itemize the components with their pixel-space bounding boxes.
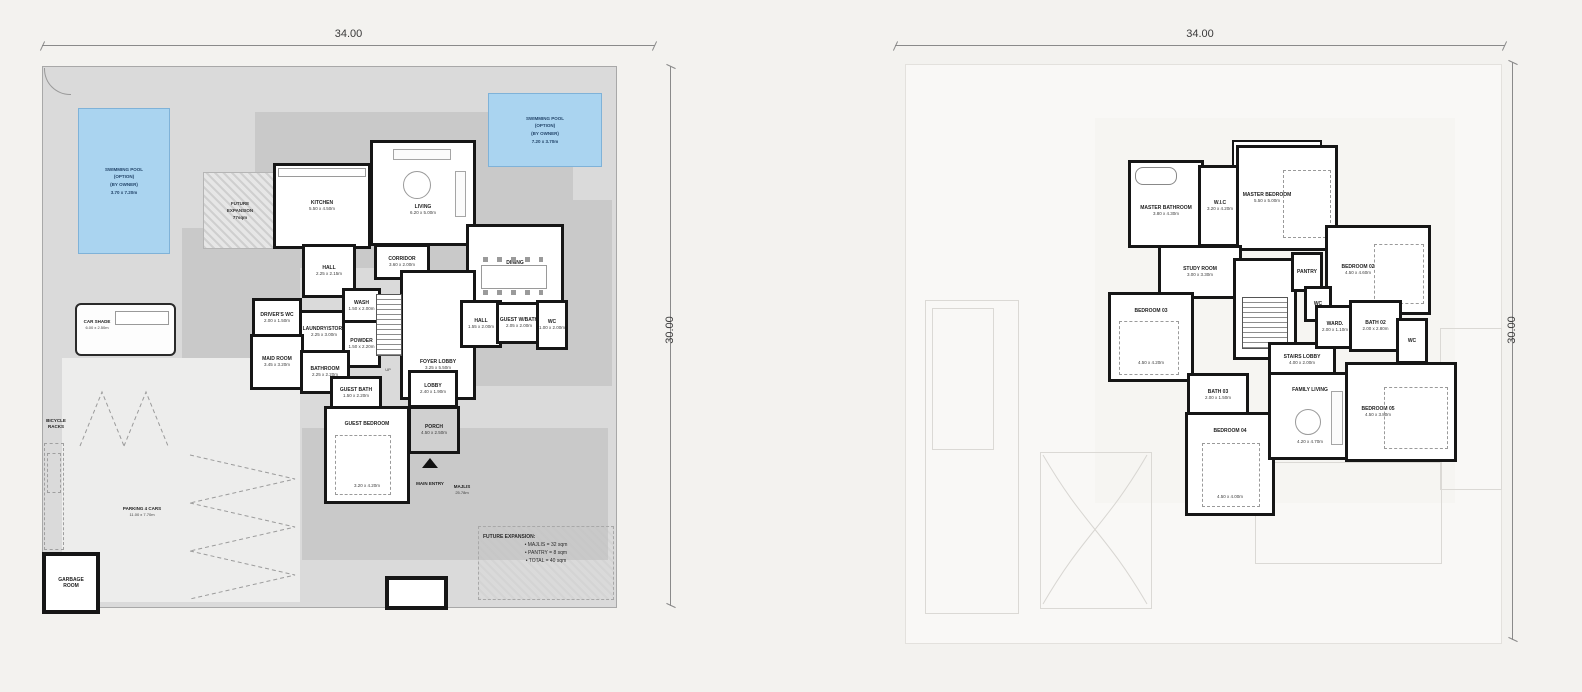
kitchen-counter bbox=[278, 168, 366, 177]
room-dims: 1.55 x 2.00m bbox=[468, 324, 494, 330]
room-garbage: GARBAGE ROOM bbox=[42, 552, 100, 614]
room-porch: PORCH 4.50 x 2.50m bbox=[408, 406, 460, 454]
room-label: BEDROOM 04 bbox=[1213, 428, 1246, 435]
bicycle-racks-label: BICYCLE RACKS bbox=[40, 418, 72, 430]
room-dims: 1.50 x 2.20m bbox=[348, 344, 374, 350]
pool-label: (OPTION) bbox=[114, 173, 134, 181]
boundary-gate bbox=[385, 576, 448, 610]
room-family-living: FAMILY LIVING 4.20 x 4.70m bbox=[1268, 372, 1352, 460]
pool-label: SWIMMING POOL bbox=[105, 166, 143, 174]
swimming-pool-right: SWIMMING POOL (OPTION) (BY OWNER) 7.20 x… bbox=[488, 93, 602, 167]
room-bath-02: BATH 02 2.00 x 2.80m bbox=[1349, 300, 1402, 352]
room-kitchen: KITCHEN 5.50 x 4.50m bbox=[273, 163, 371, 249]
guest-bed bbox=[335, 435, 391, 495]
room-label: FAMILY LIVING bbox=[1292, 387, 1328, 394]
ghost-terrace-bottom bbox=[1255, 462, 1442, 564]
room-dims: 1.00 x 2.00m bbox=[539, 325, 565, 331]
bedroom02-bed bbox=[1374, 244, 1424, 304]
room-label: GUEST BEDROOM bbox=[345, 421, 390, 428]
dim-top-line bbox=[895, 45, 1505, 46]
dim-right-label: 30.00 bbox=[1506, 308, 1518, 352]
room-dims: 1.50 x 2.00m bbox=[348, 306, 374, 312]
room-dims: 3.00 x 3.30m bbox=[1187, 272, 1213, 278]
ghost-parking-inner bbox=[932, 308, 994, 450]
family-table bbox=[1295, 409, 1321, 435]
staircase-up bbox=[376, 294, 402, 356]
room-living: LIVING 6.20 x 5.00m bbox=[370, 140, 476, 246]
parking-label: PARKING 4 CARS 11.00 x 7.70m bbox=[102, 506, 182, 517]
room-dims: 1.50 x 2.20m bbox=[343, 393, 369, 399]
bathtub bbox=[1135, 167, 1177, 185]
room-label: BEDROOM 03 bbox=[1134, 308, 1167, 315]
swimming-pool-left: SWIMMING POOL (OPTION) (BY OWNER) 3.70 x… bbox=[78, 108, 170, 254]
room-lobby: LOBBY 2.40 x 1.90m bbox=[408, 370, 458, 408]
ground-floor-plan: 34.00 30.00 SWIMMING POOL (OPTION) (BY O… bbox=[40, 28, 685, 678]
dining-chairs-bottom bbox=[483, 290, 543, 295]
car-shade-dims: 6.00 x 2.50m bbox=[79, 325, 115, 330]
parking-dims: 11.00 x 7.70m bbox=[102, 512, 182, 517]
room-study: STUDY ROOM 3.00 x 3.30m bbox=[1158, 245, 1242, 299]
note-item: • TOTAL = 40 sqm bbox=[483, 557, 609, 565]
car-shade-name: CAR SHADE bbox=[79, 319, 115, 325]
family-sofa bbox=[1331, 391, 1343, 445]
hatch-label: 77sqm bbox=[233, 214, 247, 221]
room-dims: 3.80 x 4.30m bbox=[1153, 211, 1179, 217]
room-dims: 2.00 x 1.50m bbox=[264, 318, 290, 324]
car-shade-label: CAR SHADE 6.00 x 2.50m bbox=[79, 319, 115, 330]
car-shade-bench bbox=[115, 311, 169, 325]
room-dims: 2.00 x 1.50m bbox=[1205, 395, 1231, 401]
bedroom04-bed bbox=[1202, 443, 1260, 507]
room-dims: 4.50 x 2.50m bbox=[421, 430, 447, 436]
car-shade: CAR SHADE 6.00 x 2.50m bbox=[75, 303, 176, 356]
room-master-bedroom: MASTER BEDROOM 5.50 x 5.00m bbox=[1236, 145, 1338, 251]
note-item: • MAJLIS = 32 sqm bbox=[483, 541, 609, 549]
room-maid: MAID ROOM 3.45 x 3.20m bbox=[250, 334, 304, 390]
pool-label: (BY OWNER) bbox=[110, 181, 138, 189]
dim-top-line bbox=[42, 45, 655, 46]
bedroom03-bed bbox=[1119, 321, 1179, 375]
dining-chairs-top bbox=[483, 257, 543, 262]
dim-top-label: 34.00 bbox=[895, 28, 1505, 40]
room-label: ROOM bbox=[63, 583, 79, 590]
living-sofa-top bbox=[393, 149, 451, 160]
first-floor-plan: 34.00 30.00 TERRACE 4.45 x 2.00m MASTER … bbox=[890, 28, 1540, 683]
room-dims: 2.00 x 1.10m bbox=[1322, 327, 1348, 333]
pool-label: SWIMMING POOL bbox=[526, 115, 564, 123]
room-dims: 2.40 x 1.90m bbox=[420, 389, 446, 395]
bicycle-line2: RACKS bbox=[40, 424, 72, 430]
hatch-label: EXPANSION bbox=[227, 207, 253, 214]
majlis-label: MAJLIS 25.78m bbox=[432, 484, 492, 495]
room-dims: 2.25 x 2.15m bbox=[316, 271, 342, 277]
up-label: UP bbox=[385, 367, 391, 372]
pool-label: (OPTION) bbox=[535, 122, 555, 130]
stairs-up-label: UP bbox=[370, 356, 406, 378]
master-bed bbox=[1283, 170, 1331, 238]
room-label: WC bbox=[1408, 338, 1416, 345]
room-dims: 2.05 x 2.00m bbox=[506, 323, 532, 329]
room-wc: WC 1.00 x 2.00m bbox=[536, 300, 568, 350]
room-dims: 6.20 x 5.00m bbox=[410, 210, 436, 216]
note-title: FUTURE EXPANSION: bbox=[483, 533, 609, 541]
future-expansion-note: FUTURE EXPANSION: • MAJLIS = 32 sqm • PA… bbox=[478, 526, 614, 600]
room-bedroom-03: BEDROOM 03 4.50 x 4.20m bbox=[1108, 292, 1194, 382]
living-table bbox=[403, 171, 431, 199]
room-dims: 4.50 x 4.60m bbox=[1345, 270, 1371, 276]
room-dims: 2.25 x 3.00m bbox=[311, 332, 337, 338]
dim-right-label: 30.00 bbox=[664, 308, 676, 352]
room-dining: DINING 7.00 x 4.00m bbox=[466, 224, 564, 308]
room-drivers-wc: DRIVER'S WC 2.00 x 1.50m bbox=[252, 298, 302, 338]
room-dims: 4.20 x 4.70m bbox=[1297, 439, 1323, 445]
note-item: • PANTRY = 8 sqm bbox=[483, 549, 609, 557]
room-dims: 5.50 x 5.00m bbox=[1254, 198, 1280, 204]
room-guest-bedroom: GUEST BEDROOM 3.20 x 4.20m bbox=[324, 406, 410, 504]
dim-top-label: 34.00 bbox=[40, 28, 657, 40]
ghost-pool-curves bbox=[1040, 452, 1150, 607]
pool-label: 7.20 x 3.70m bbox=[532, 138, 559, 146]
room-dims: 2.00 x 2.80m bbox=[1362, 326, 1388, 332]
pool-label: 3.70 x 7.20m bbox=[111, 189, 138, 197]
majlis-dims: 25.78m bbox=[432, 490, 492, 495]
main-entry-arrow-icon bbox=[422, 458, 438, 468]
room-bedroom-04: BEDROOM 04 4.50 x 4.00m bbox=[1185, 412, 1275, 516]
room-dims: 3.20 x 4.20m bbox=[1207, 206, 1233, 212]
room-dims: 3.45 x 3.20m bbox=[264, 362, 290, 368]
room-guest-bath: GUEST BATH 1.50 x 2.20m bbox=[330, 376, 382, 410]
room-dims: 4.00 x 2.00m bbox=[1289, 360, 1315, 366]
hatch-label: FUTURE bbox=[231, 200, 249, 207]
room-label: PANTRY bbox=[1297, 269, 1317, 276]
room-master-bathroom: MASTER BATHROOM 3.80 x 4.30m bbox=[1128, 160, 1204, 248]
bicycle-rack-stall bbox=[47, 453, 61, 493]
living-sofa-right bbox=[455, 171, 466, 217]
pool-label: (BY OWNER) bbox=[531, 130, 559, 138]
dining-table bbox=[481, 265, 547, 289]
room-bedroom-05: BEDROOM 05 4.50 x 3.80m bbox=[1345, 362, 1457, 462]
room-bath-03: BATH 03 2.00 x 1.50m bbox=[1187, 373, 1249, 417]
room-dims: 3.60 x 2.00m bbox=[389, 262, 415, 268]
room-wc-right: WC bbox=[1396, 318, 1428, 364]
bedroom05-bed bbox=[1384, 387, 1448, 449]
future-expansion-area: FUTURE EXPANSION 77sqm bbox=[203, 172, 277, 249]
room-dims: 5.50 x 4.50m bbox=[309, 206, 335, 212]
